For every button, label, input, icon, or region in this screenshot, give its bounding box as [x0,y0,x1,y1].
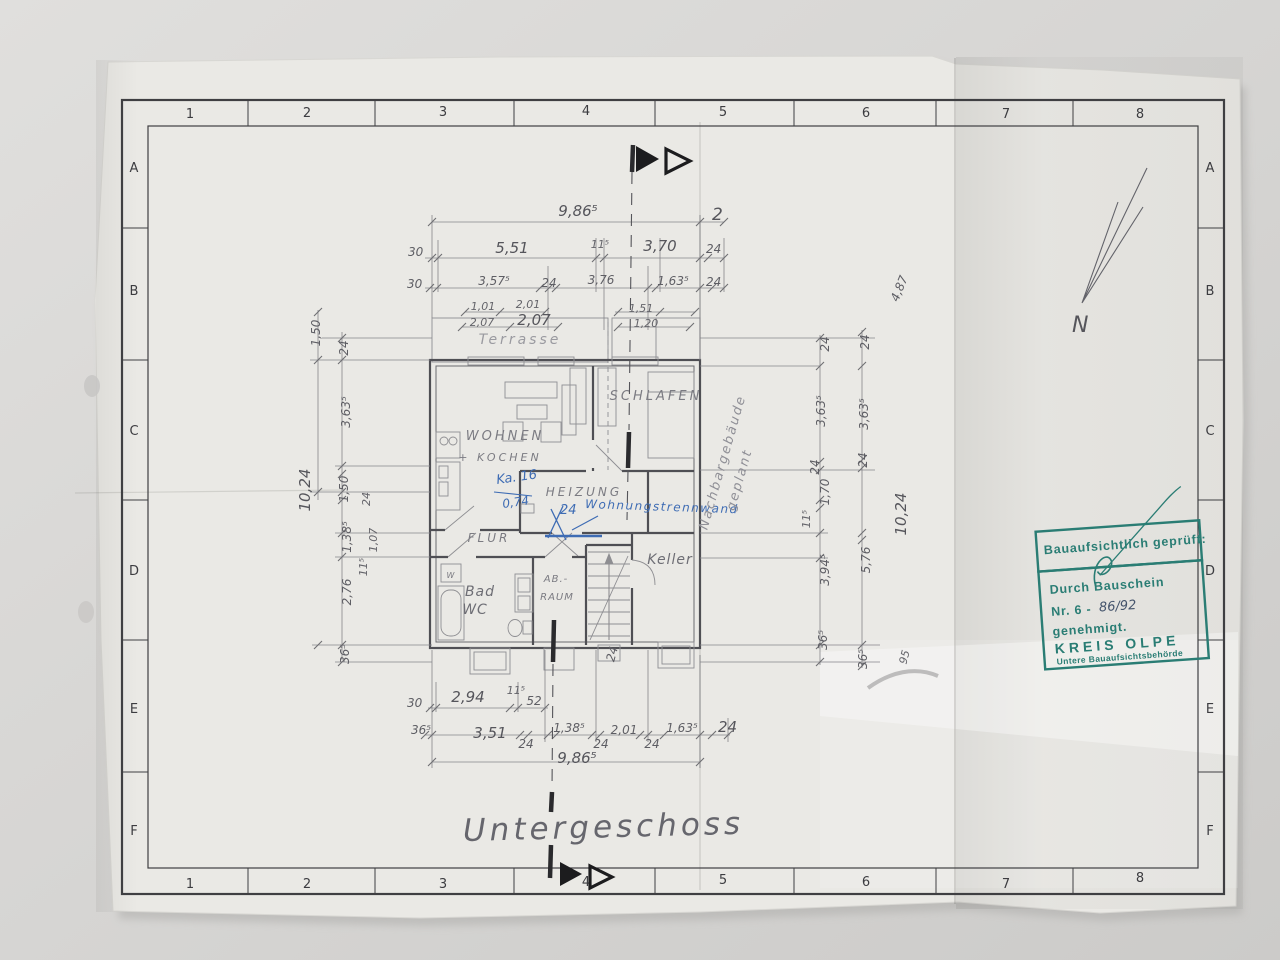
dimension-label: 36⁵ [856,649,870,669]
dimension-label: 11⁵ [800,510,813,528]
dimension-label: 11⁵ [591,238,609,251]
grid-row-label: A [1206,161,1215,176]
grid-col-label: 3 [439,105,447,120]
dimension-label: 24 [337,340,351,355]
dimension-label: 5,51 [495,239,528,257]
grid-col-label: 2 [303,106,311,121]
dimension-label: 3,63⁵ [857,398,871,430]
dimension-label: 3,70 [643,237,676,255]
dimension-label: 36⁵ [411,723,431,737]
grid-row-label: B [130,284,139,299]
room-label-schlafen: SCHLAFEN [610,389,703,404]
room-label-kochen: + KOCHEN [458,451,541,464]
room-label-heizung: HEIZUNG [546,485,622,499]
plan-title: Untergeschoss [463,806,745,849]
dimension-label: 1,07 [367,528,380,553]
north-label: N [1072,313,1088,338]
grid-col-label: 3 [439,877,447,892]
dimension-label: 24 [706,242,721,256]
stamp-number-handwritten: 86/92 [1099,598,1137,616]
room-label-keller: Keller [647,552,693,568]
dimension-label: 2,07 [517,311,551,329]
room-label-wc: WC [462,602,488,618]
room-label-abstellraum: AB.- [543,574,569,585]
dimension-label: 2,07 [470,316,495,329]
grid-col-label: 8 [1136,107,1144,122]
grid-col-label: 7 [1002,107,1010,122]
room-label-wohnen: WOHNEN [466,429,545,444]
grid-row-label: E [1206,702,1214,717]
photo-of-floor-plan: 1 2 3 4 5 6 7 8 1 2 3 4 5 6 7 8 A B C D … [0,0,1280,960]
dimension-label: 2,76 [340,578,354,605]
dimension-label: 1,38⁵ [553,721,585,735]
dimension-label: 1,50 [337,475,351,502]
dimension-label: 3,63⁵ [814,395,828,427]
hole-punch-bottom [78,601,94,623]
dimension-label: 1,38⁵ [340,521,354,553]
grid-row-label: D [1205,564,1215,579]
grid-col-label: 5 [719,873,727,888]
dimension-label: 24 [644,737,659,751]
stamp-line-number: Nr. 6 - [1051,602,1092,619]
grid-col-label: 8 [1136,871,1144,886]
dimension-label: 2 [712,205,723,225]
dimension-label: 30 [407,277,423,291]
grid-row-label: C [129,424,138,439]
dimension-label: 36⁵ [338,644,352,664]
grid-row-label: D [129,564,139,579]
dimension-label: 24 [856,452,870,467]
grid-col-label: 1 [186,107,194,122]
dimension-label: 1,70 [818,478,832,505]
grid-col-label: 6 [862,106,870,121]
dimension-label: 11⁵ [507,684,525,697]
grid-col-label: 4 [582,104,590,119]
grid-row-label: F [1206,824,1213,839]
dimension-label: 1,01 [471,300,496,313]
room-label-abstellraum: RAUM [540,592,574,603]
dimension-label: 1,63⁵ [666,721,698,735]
dimension-label: 24 [818,336,832,351]
grid-col-label: 5 [719,105,727,120]
dimension-label: 9,86⁵ [557,749,596,767]
dimension-label: 1,63⁵ [657,274,689,288]
dimension-label: 30 [407,696,423,710]
dimension-label: 9,86⁵ [558,202,597,220]
dimension-label: 3,76 [588,273,615,287]
dimension-label: 10,24 [892,493,910,536]
dimension-label: 2,01 [611,723,638,737]
dimension-label: 2,01 [516,298,541,311]
dimension-label: 24 [858,334,872,349]
dimension-label: 10,24 [296,469,314,512]
dimension-label: 30 [408,245,424,259]
grid-col-label: 2 [303,877,311,892]
dimension-label: 1,51 [629,302,654,315]
room-label-terrasse: Terrasse [479,332,562,348]
grid-row-label: C [1205,424,1214,439]
dimension-label: 24 [541,276,556,290]
dimension-label: 24 [808,459,822,474]
dimension-label: 24 [706,275,721,289]
dimension-label: 3,51 [473,724,506,742]
grid-row-label: E [130,702,138,717]
dimension-label: 11⁵ [357,558,370,576]
dimension-label: 1,20 [634,317,659,330]
grid-row-label: F [130,824,137,839]
grid-col-label: 1 [186,877,194,892]
grid-row-label: A [130,161,139,176]
dimension-label: 24 [718,718,737,736]
note-wall-thickness: 24 [560,503,577,518]
grid-row-label: B [1206,284,1215,299]
washbasin-label: W [447,571,456,580]
room-label-bad: Bad [465,584,495,600]
dimension-label: 2,94 [451,688,484,706]
dimension-label: 24 [360,492,373,506]
room-label-flur: FLUR [468,531,511,545]
grid-col-label: 6 [862,875,870,890]
grid-col-label: 7 [1002,877,1010,892]
dimension-label: 1,50 [309,319,323,346]
dimension-label: 36⁵ [816,630,830,650]
dimension-label: 3,57⁵ [478,274,510,288]
dimension-label: 52 [526,694,541,708]
edge-shading [96,60,138,912]
paper-sheet [75,56,1243,918]
hole-punch-top [84,375,100,397]
dimension-label: 24 [518,737,533,751]
dimension-label: 5,76 [859,546,873,573]
dimension-label: 3,63⁵ [339,396,353,428]
dimension-label: 3,94⁵ [818,554,832,586]
